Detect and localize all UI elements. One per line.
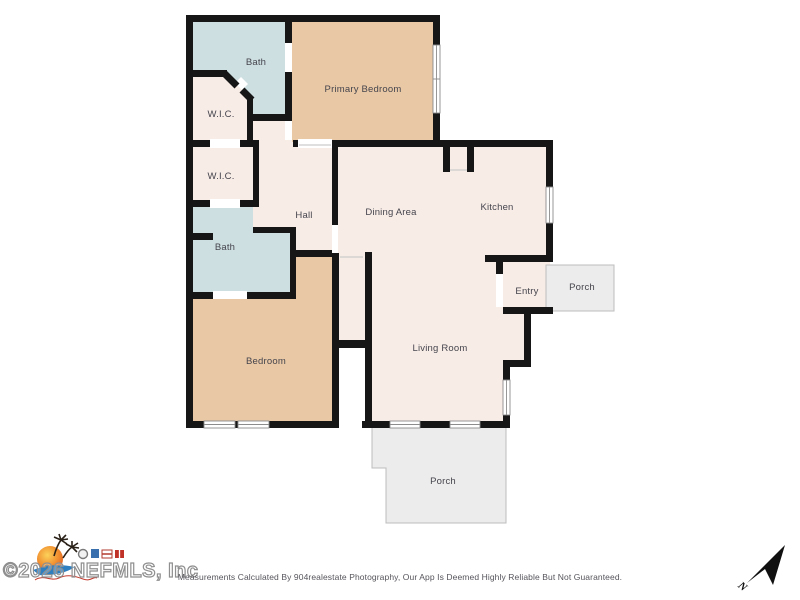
room-label-primary-bedroom: Primary Bedroom <box>325 84 402 95</box>
porch-rear-fill <box>372 424 506 523</box>
equal-housing-icon <box>91 549 99 558</box>
room-label-entry: Entry <box>515 286 538 297</box>
window-living-bottom-2 <box>450 421 480 428</box>
association-badge-icons <box>79 549 125 559</box>
north-arrow-icon: N <box>735 540 795 592</box>
room-label-bath-lower: Bath <box>215 242 235 253</box>
window-primary-bedroom <box>433 45 440 113</box>
room-label-hall: Hall <box>295 210 312 221</box>
disclaimer-text: Measurements Calculated By 904realestate… <box>0 572 800 582</box>
window-living-bottom-1 <box>390 421 420 428</box>
room-label-wic-1: W.I.C. <box>207 109 234 120</box>
room-primary-bedroom-fill <box>292 20 435 142</box>
exterior-notch <box>339 348 365 428</box>
window-living-right <box>503 380 510 415</box>
room-label-bedroom: Bedroom <box>246 356 286 367</box>
room-label-kitchen: Kitchen <box>480 202 513 213</box>
floor-plan-page: Bath Primary Bedroom W.I.C. W.I.C. Hall … <box>0 0 800 600</box>
window-kitchen <box>546 187 553 223</box>
realtor-badge-icon <box>79 550 88 559</box>
room-label-dining-area: Dining Area <box>365 207 417 218</box>
floor-plan: Bath Primary Bedroom W.I.C. W.I.C. Hall … <box>0 0 800 600</box>
room-label-porch-side: Porch <box>569 282 595 293</box>
window-bedroom-1 <box>204 421 235 428</box>
room-label-bath-top: Bath <box>246 57 266 68</box>
room-label-wic-2: W.I.C. <box>207 171 234 182</box>
window-bedroom-2 <box>238 421 269 428</box>
room-label-living-room: Living Room <box>412 343 467 354</box>
room-label-porch-rear: Porch <box>430 476 456 487</box>
